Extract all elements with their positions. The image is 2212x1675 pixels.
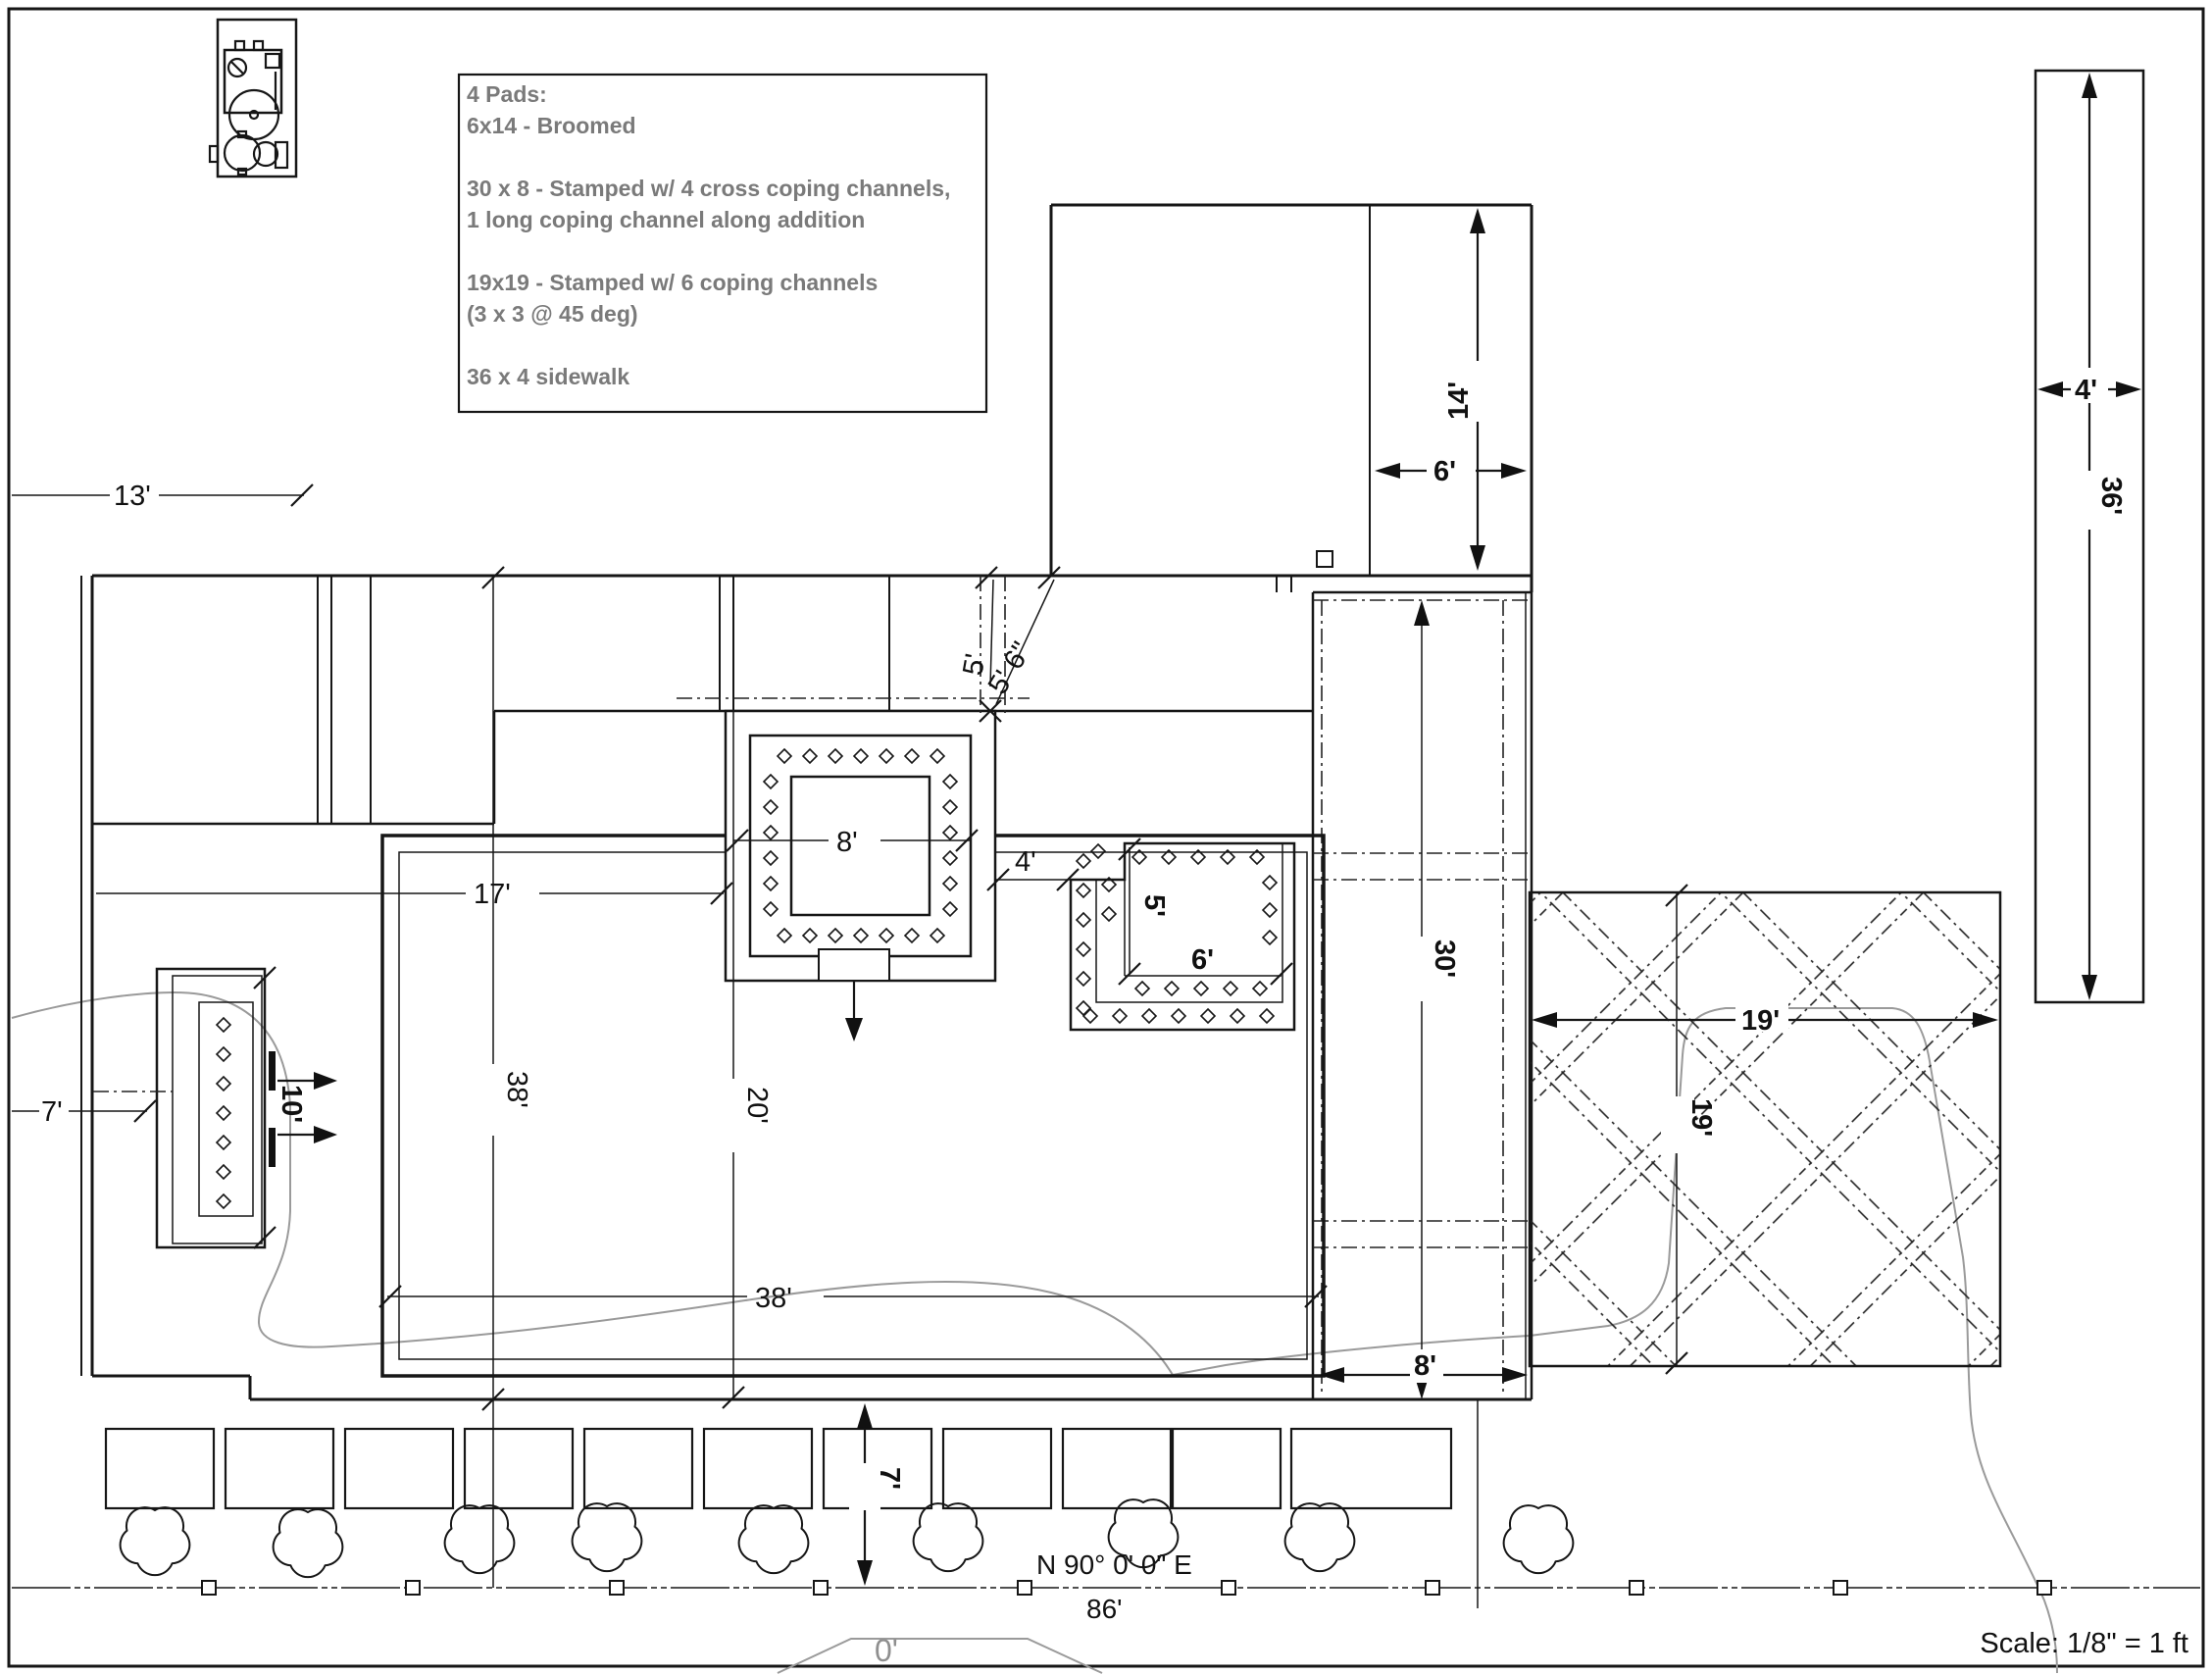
site-plan-page: 4 Pads: 6x14 - Broomed 30 x 8 - Stamped …	[0, 0, 2212, 1675]
spa: 8'	[726, 711, 995, 1041]
planting-bed	[345, 1429, 453, 1508]
survey-marker-icon	[1630, 1581, 1643, 1595]
site-plan-drawing: 4 Pads: 6x14 - Broomed 30 x 8 - Stamped …	[0, 0, 2212, 1675]
note-line: 36 x 4 sidewalk	[467, 364, 629, 389]
planting-bed	[1291, 1429, 1451, 1508]
survey-marker-icon	[1018, 1581, 1031, 1595]
column-marker-icon	[1317, 551, 1332, 567]
pad-19x19	[1530, 892, 2000, 1366]
note-line: 1 long coping channel along addition	[467, 207, 865, 232]
planting-bed	[1173, 1429, 1281, 1508]
water-feature: 10'	[157, 967, 337, 1248]
dim-7-walk-label: 7'	[874, 1467, 905, 1490]
tree-icon	[121, 1507, 190, 1575]
planting-beds	[106, 1429, 1451, 1508]
dim-water-feature-label: 10'	[276, 1085, 307, 1123]
dim-13-label: 13'	[114, 481, 151, 512]
spillway-arrow-icon	[845, 1018, 863, 1041]
spa-spillway	[819, 949, 889, 981]
survey-marker-icon	[1222, 1581, 1235, 1595]
bearing-label: N 90° 0' 0" E	[1036, 1549, 1192, 1580]
tree-icon	[1285, 1503, 1355, 1571]
note-line: (3 x 3 @ 45 deg)	[467, 301, 638, 327]
pool-equipment-icon	[210, 20, 296, 177]
dim-sidewalk-length-label: 36'	[2095, 477, 2127, 515]
note-line: 19x19 - Stamped w/ 6 coping channels	[467, 270, 878, 295]
dim-7-left-label: 7'	[41, 1096, 63, 1128]
dim-sidewalk-width-label: 4'	[2075, 375, 2097, 406]
frontage-dim-label: 86'	[1086, 1594, 1123, 1624]
dim-6-pad-label: 6'	[1433, 456, 1456, 487]
dim-8-pad-label: 8'	[1414, 1350, 1436, 1382]
survey-marker-icon	[406, 1581, 420, 1595]
property-line: N 90° 0' 0" E 86'	[12, 1549, 2200, 1624]
water-jet-arrow-icon	[314, 1126, 337, 1143]
survey-marker-icon	[1834, 1581, 1847, 1595]
drawing-border	[9, 9, 2203, 1666]
grade-contour-zero	[778, 1639, 1102, 1673]
dim-spa-offset-label: 5'	[957, 651, 991, 678]
scale-note: Scale: 1/8" = 1 ft	[1980, 1628, 2188, 1659]
tile-diamonds	[1077, 844, 1277, 1023]
survey-marker-icon	[2037, 1581, 2051, 1595]
dim-ledge-depth-label: 5'	[1138, 894, 1170, 917]
contour-elevation-label: 0'	[875, 1633, 898, 1668]
survey-marker-icon	[610, 1581, 624, 1595]
notes-box: 4 Pads: 6x14 - Broomed 30 x 8 - Stamped …	[459, 75, 986, 412]
dim-spa-to-ledge-label: 4'	[1015, 846, 1036, 878]
dim-ledge-width-label: 6'	[1191, 944, 1214, 976]
spa-platform	[726, 711, 995, 981]
sheer-descent-icon	[269, 1051, 276, 1091]
trees	[121, 1499, 1574, 1577]
sidewalk-36x4: 36' 4'	[2036, 71, 2143, 1002]
planting-bed	[704, 1429, 812, 1508]
survey-marker-icon	[202, 1581, 216, 1595]
planting-bed	[943, 1429, 1051, 1508]
dim-38-h-label: 38'	[755, 1283, 792, 1314]
tanning-ledge: 5' 6' 4'	[987, 838, 1294, 1030]
planting-bed	[584, 1429, 692, 1508]
dim-19-h-label: 19'	[1685, 1098, 1717, 1137]
tree-icon	[573, 1503, 642, 1571]
tile-diamonds	[217, 1018, 230, 1208]
sheer-descent-icon	[269, 1128, 276, 1167]
survey-marker-icon	[1426, 1581, 1439, 1595]
dim-14-label: 14'	[1443, 381, 1475, 420]
filter-icon	[229, 90, 278, 139]
dim-38-v-label: 38'	[501, 1071, 532, 1108]
dim-30-label: 30'	[1429, 939, 1460, 978]
tree-icon	[914, 1503, 983, 1571]
dim-20-label: 20'	[741, 1087, 773, 1124]
dim-19-w-label: 19'	[1741, 1005, 1780, 1037]
planting-bed	[106, 1429, 214, 1508]
dim-spa-width-label: 8'	[836, 827, 858, 858]
planting-bed	[226, 1429, 333, 1508]
planting-bed	[465, 1429, 573, 1508]
tree-icon	[739, 1505, 809, 1573]
tree-icon	[445, 1505, 515, 1573]
tree-icon	[1504, 1505, 1574, 1573]
note-line: 30 x 8 - Stamped w/ 4 cross coping chann…	[467, 176, 950, 201]
note-line: 6x14 - Broomed	[467, 113, 636, 138]
dim-spa-offset2-label: 5' 6"	[982, 636, 1038, 700]
survey-marker-icon	[814, 1581, 828, 1595]
tree-icon	[274, 1509, 343, 1577]
water-jet-arrow-icon	[314, 1072, 337, 1090]
note-line: 4 Pads:	[467, 81, 547, 107]
dim-17-label: 17'	[474, 879, 511, 910]
planting-bed	[1063, 1429, 1171, 1508]
